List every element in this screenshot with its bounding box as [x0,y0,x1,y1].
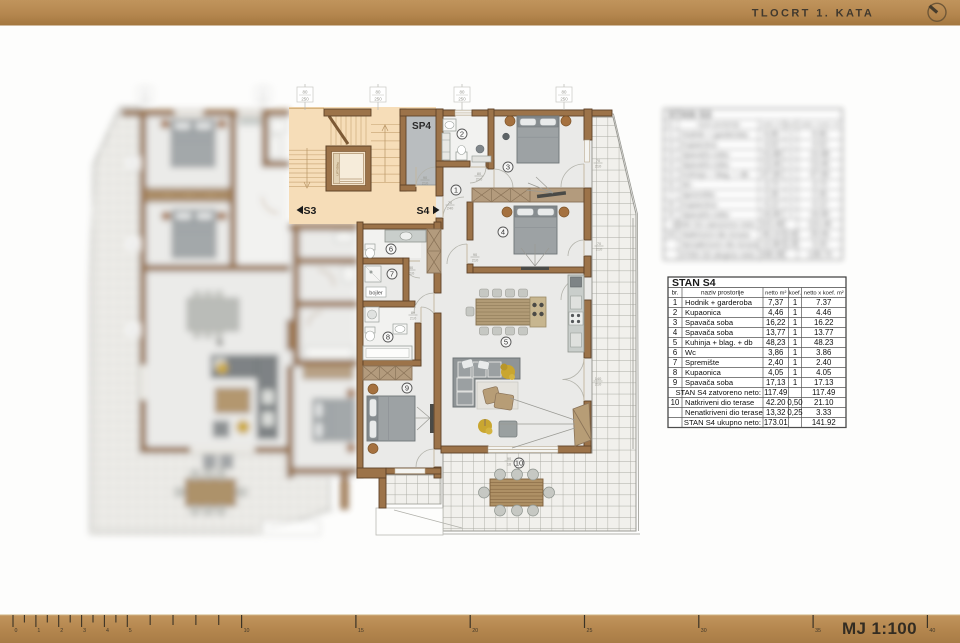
svg-text:Kupaonica: Kupaonica [685,368,722,377]
svg-text:Spavača soba: Spavača soba [685,328,734,337]
svg-text:naziv prostorije: naziv prostorije [697,122,740,129]
svg-text:Spremište: Spremište [681,190,715,199]
svg-text:13,77: 13,77 [766,328,786,337]
svg-text:250: 250 [130,164,138,169]
svg-text:1: 1 [789,200,793,209]
svg-text:1: 1 [454,186,458,195]
svg-text:Kupaonica: Kupaonica [681,200,718,209]
svg-text:3: 3 [673,318,677,327]
svg-text:4,05: 4,05 [768,368,784,377]
svg-text:koef.: koef. [785,123,798,129]
svg-text:13.77: 13.77 [814,328,834,337]
svg-text:TLOCRT 1. KATA: TLOCRT 1. KATA [752,8,874,20]
svg-text:80: 80 [132,325,137,330]
svg-text:bojler: bojler [369,291,383,297]
svg-text:17,13: 17,13 [766,378,786,387]
svg-text:10: 10 [667,230,676,239]
svg-text:47.60: 47.60 [810,170,830,179]
svg-text:0,25: 0,25 [787,408,803,417]
svg-text:4.52: 4.52 [812,140,827,149]
svg-text:5: 5 [504,338,508,347]
svg-text:1: 1 [789,130,793,139]
svg-text:6: 6 [669,180,673,189]
svg-text:13,45: 13,45 [762,160,782,169]
svg-text:141.92: 141.92 [812,418,836,427]
svg-text:48,23: 48,23 [766,338,786,347]
svg-text:4.12: 4.12 [812,200,827,209]
svg-text:7,37: 7,37 [768,298,783,307]
svg-text:2,40: 2,40 [768,358,784,367]
svg-text:16,90: 16,90 [762,210,782,219]
svg-text:Nenatkriveni dio terase: Nenatkriveni dio terase [685,408,763,417]
svg-text:5: 5 [673,338,678,347]
svg-text:138.74: 138.74 [808,250,833,259]
svg-text:40: 40 [929,628,935,634]
svg-text:3: 3 [669,150,673,159]
svg-text:MJ 1:100: MJ 1:100 [842,619,917,638]
svg-text:Natkriveni dio terase: Natkriveni dio terase [685,398,754,407]
svg-text:STAN S4: STAN S4 [672,277,716,289]
svg-text:1: 1 [793,358,797,367]
svg-text:12,80: 12,80 [762,240,782,249]
svg-text:250: 250 [130,331,138,336]
svg-text:250: 250 [130,245,138,250]
svg-text:1: 1 [793,348,797,357]
svg-text:Spavača soba: Spavača soba [681,160,730,169]
svg-text:3.72: 3.72 [812,180,827,189]
svg-text:35: 35 [815,628,821,634]
svg-text:6.95: 6.95 [812,130,828,139]
svg-text:STAN S4 zatvoreno neto:: STAN S4 zatvoreno neto: [675,388,761,397]
svg-text:1: 1 [793,378,797,387]
svg-text:0,50: 0,50 [787,398,803,407]
svg-text:Nenatkriveni dio terase: Nenatkriveni dio terase [681,240,759,249]
svg-text:1: 1 [789,170,793,179]
svg-text:1: 1 [793,308,797,317]
svg-text:9: 9 [405,384,409,393]
svg-text:15: 15 [358,628,364,634]
svg-text:1: 1 [789,150,793,159]
svg-text:Natkriveni dio terase: Natkriveni dio terase [681,230,750,239]
svg-text:30: 30 [701,628,707,634]
svg-text:80: 80 [261,90,266,95]
svg-text:4,52: 4,52 [764,140,779,149]
svg-text:1: 1 [789,190,793,199]
svg-text:250: 250 [259,97,267,102]
svg-text:3,86: 3,86 [768,348,783,357]
svg-text:netto m²: netto m² [765,291,786,297]
svg-text:Kupaonica: Kupaonica [685,308,722,317]
svg-text:br.: br. [668,123,675,129]
svg-text:10: 10 [515,459,523,468]
svg-text:210: 210 [596,246,603,251]
svg-text:250: 250 [301,97,309,102]
svg-text:STAN S3: STAN S3 [668,109,712,121]
svg-text:2: 2 [60,628,63,634]
svg-text:Kuhinja + blag. + db: Kuhinja + blag. + db [685,338,753,347]
svg-text:16.90: 16.90 [810,210,830,219]
svg-text:80: 80 [132,239,137,244]
svg-text:3.33: 3.33 [816,408,831,417]
svg-text:80: 80 [562,90,567,95]
svg-text:48.23: 48.23 [814,338,834,347]
svg-text:210: 210 [472,257,479,262]
svg-text:117.49: 117.49 [812,388,835,397]
svg-text:15,88: 15,88 [762,150,782,159]
svg-text:Spavača soba: Spavača soba [685,318,734,327]
svg-text:6: 6 [389,245,393,254]
svg-text:80: 80 [460,90,465,95]
svg-text:0,25: 0,25 [783,240,799,249]
svg-text:S4: S4 [417,205,430,217]
svg-text:115.49: 115.49 [808,220,831,229]
svg-text:210: 210 [476,176,483,181]
svg-text:STAN S4 ukupno neto:: STAN S4 ukupno neto: [684,418,761,427]
svg-text:6,95: 6,95 [764,130,780,139]
svg-text:20: 20 [472,628,478,634]
svg-text:Hodnik + garderoba: Hodnik + garderoba [685,298,753,307]
svg-text:3: 3 [506,163,510,172]
svg-text:1: 1 [789,160,793,169]
svg-text:STAN S3 ukupno neto:: STAN S3 ukupno neto: [680,250,757,259]
svg-text:koef.: koef. [789,291,802,297]
svg-text:1: 1 [793,298,797,307]
svg-text:LIFT 630kg: LIFT 630kg [336,162,340,176]
svg-text:7: 7 [673,358,677,367]
svg-text:4,12: 4,12 [764,200,779,209]
svg-text:80: 80 [132,158,137,163]
svg-text:STAN S3 zatvoreno neto:: STAN S3 zatvoreno neto: [671,220,757,229]
svg-text:1: 1 [669,130,673,139]
svg-text:16.22: 16.22 [814,318,834,327]
svg-text:0: 0 [15,628,18,634]
svg-text:Spavača soba: Spavača soba [681,210,730,219]
svg-text:8: 8 [386,333,390,342]
svg-text:240: 240 [447,205,454,210]
svg-text:210: 210 [410,315,417,320]
svg-text:SP4: SP4 [412,121,431,132]
svg-text:117.49: 117.49 [764,388,787,397]
svg-text:250: 250 [141,97,149,102]
svg-text:9: 9 [673,378,677,387]
svg-text:8: 8 [673,368,677,377]
svg-text:210: 210 [595,163,602,168]
svg-text:6: 6 [673,348,677,357]
svg-text:7: 7 [669,190,673,199]
svg-text:netto x koef. m²: netto x koef. m² [800,123,840,129]
svg-text:4: 4 [673,328,678,337]
svg-text:S3: S3 [304,205,317,217]
svg-text:br.: br. [672,291,679,297]
svg-text:2: 2 [669,140,673,149]
svg-text:0,50: 0,50 [783,230,799,239]
svg-text:210: 210 [595,381,602,386]
svg-text:40,10: 40,10 [762,230,782,239]
svg-text:5: 5 [129,628,132,634]
svg-text:4.05: 4.05 [816,368,832,377]
svg-text:15.88: 15.88 [810,150,830,159]
svg-text:2,35: 2,35 [764,190,780,199]
svg-text:47,60: 47,60 [762,170,782,179]
svg-text:Spavača soba: Spavača soba [681,150,730,159]
svg-text:173.01: 173.01 [764,418,788,427]
svg-text:42.20: 42.20 [766,398,786,407]
svg-text:10: 10 [244,628,250,634]
svg-text:80: 80 [143,90,148,95]
svg-text:Hodnik + garderoba: Hodnik + garderoba [681,130,749,139]
svg-text:250: 250 [458,97,466,102]
svg-text:1: 1 [793,368,797,377]
svg-text:140: 140 [595,376,602,381]
svg-text:16,22: 16,22 [766,318,786,327]
svg-text:Kupaonica: Kupaonica [681,140,718,149]
svg-text:2.40: 2.40 [816,358,832,367]
svg-text:Kuhinja + blag. + db: Kuhinja + blag. + db [681,170,749,179]
svg-text:8: 8 [669,200,673,209]
svg-text:13,32: 13,32 [766,408,786,417]
svg-text:3.20: 3.20 [812,240,828,249]
svg-text:1: 1 [793,338,797,347]
svg-text:250: 250 [374,97,382,102]
svg-text:4: 4 [106,628,109,634]
svg-text:4: 4 [501,228,505,237]
svg-text:1: 1 [37,628,40,634]
svg-text:21.10: 21.10 [814,398,834,407]
svg-text:7.37: 7.37 [816,298,831,307]
svg-text:Spremište: Spremište [685,358,719,367]
svg-text:1: 1 [789,180,793,189]
svg-text:80: 80 [303,90,308,95]
svg-text:17.13: 17.13 [814,378,834,387]
svg-text:210: 210 [422,180,429,185]
svg-text:10: 10 [671,398,680,407]
svg-text:115.49: 115.49 [760,220,783,229]
svg-text:2.35: 2.35 [812,190,828,199]
svg-text:20.05: 20.05 [810,230,830,239]
svg-text:4: 4 [669,160,674,169]
svg-text:5: 5 [669,170,674,179]
svg-text:2: 2 [460,130,464,139]
svg-text:1: 1 [673,298,677,307]
svg-text:1: 1 [793,318,797,327]
svg-text:250: 250 [560,97,568,102]
svg-text:Wc: Wc [685,348,696,357]
svg-text:Spavača soba: Spavača soba [685,378,734,387]
svg-text:25: 25 [587,628,593,634]
svg-text:13.45: 13.45 [810,160,830,169]
svg-text:7: 7 [390,270,394,279]
svg-text:3: 3 [83,628,86,634]
svg-text:16: 16 [507,461,511,466]
svg-text:3,72: 3,72 [764,180,779,189]
svg-text:4,46: 4,46 [768,308,783,317]
svg-text:4.46: 4.46 [816,308,831,317]
svg-text:netto x koef. m²: netto x koef. m² [804,291,844,297]
svg-text:1: 1 [789,140,793,149]
svg-text:168.39: 168.39 [760,250,784,259]
svg-text:naziv prostorije: naziv prostorije [701,290,744,297]
svg-text:1: 1 [789,210,793,219]
svg-text:netto m²: netto m² [761,123,782,129]
svg-text:Wc: Wc [681,180,692,189]
svg-text:80: 80 [376,90,381,95]
svg-text:9: 9 [669,210,673,219]
svg-text:2: 2 [673,308,677,317]
svg-text:1: 1 [793,328,797,337]
svg-text:3.86: 3.86 [816,348,831,357]
